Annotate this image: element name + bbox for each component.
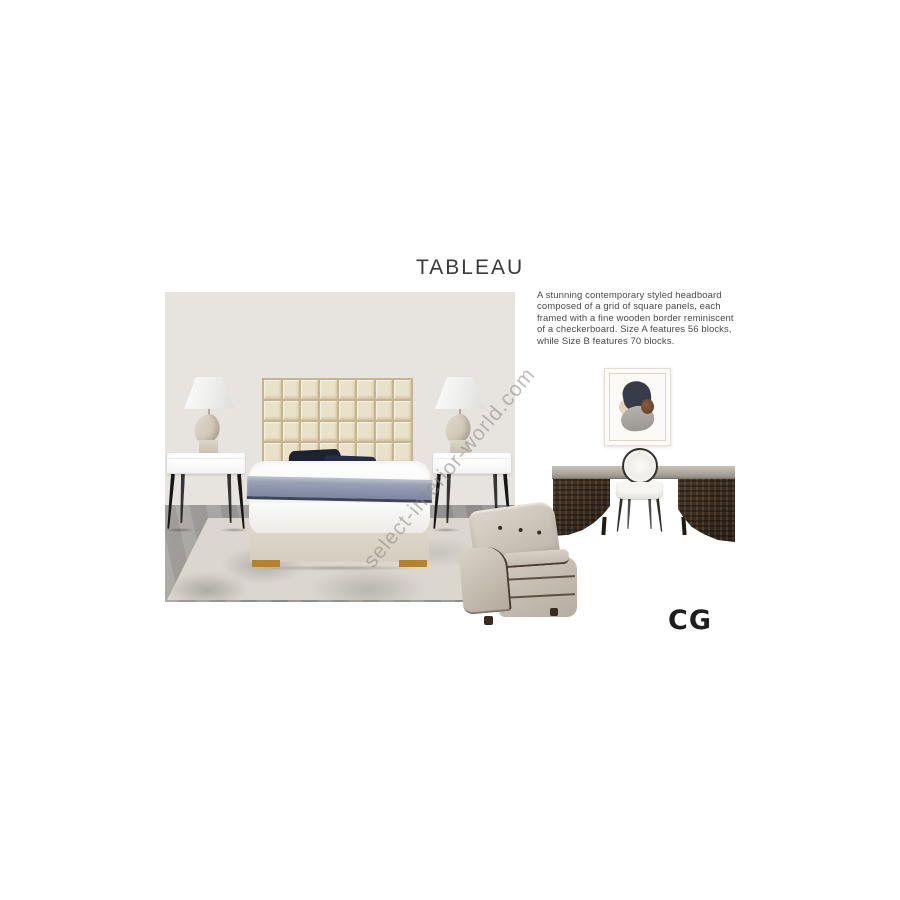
chair-leg <box>626 498 631 529</box>
headboard-panel <box>320 401 337 420</box>
headboard-panel <box>376 422 393 441</box>
brand-logo: CG <box>668 605 712 636</box>
headboard-panel <box>357 422 374 441</box>
headboard-panel <box>376 380 393 399</box>
headboard-panel <box>394 422 411 441</box>
artwork-frame <box>604 368 671 446</box>
bed-foot-brass <box>252 560 280 567</box>
product-description: A stunning contemporary styled headboard… <box>537 290 737 347</box>
bed-foot-brass <box>399 560 427 567</box>
armchair-foot <box>550 608 558 616</box>
headboard-panel <box>283 422 300 441</box>
throw-blanket <box>247 476 432 503</box>
armchair-piping <box>503 593 575 599</box>
armchair-arm <box>458 545 512 615</box>
headboard-panel <box>339 380 356 399</box>
nightstand-left <box>167 453 245 529</box>
chair-leg <box>648 498 653 529</box>
chair-seat <box>616 482 663 499</box>
nightstand-leg <box>179 474 185 523</box>
page-title: TABLEAU <box>416 256 524 280</box>
headboard-panel <box>357 380 374 399</box>
armchair-button <box>537 530 542 535</box>
armchair-foot <box>484 616 493 625</box>
floor-shadow <box>431 528 461 532</box>
moodboard-page: TABLEAU A stunning contemporary styled h… <box>0 0 900 900</box>
abstract-artwork <box>614 378 661 436</box>
lamp-plinth <box>199 440 218 453</box>
armchair-piping <box>503 575 575 581</box>
floor-shadow <box>219 528 249 532</box>
headboard-panel <box>320 422 337 441</box>
armchair-button <box>518 528 523 533</box>
nightstand-leg <box>237 474 246 529</box>
headboard-panel <box>339 401 356 420</box>
nightstand-leg <box>166 474 175 529</box>
desk-woven-panel-right <box>678 476 735 542</box>
headboard-panel <box>394 380 411 399</box>
headboard-panel <box>264 380 281 399</box>
lamp-shade <box>435 377 485 409</box>
headboard-panel <box>320 380 337 399</box>
nightstand-leg <box>227 474 233 523</box>
nightstand-drawer <box>167 453 245 474</box>
chair-leg <box>656 498 663 532</box>
headboard-panel <box>376 401 393 420</box>
chair-leg <box>616 498 623 532</box>
art-shape-brown <box>641 399 654 414</box>
lamp-shade <box>184 377 234 409</box>
oval-back-chair <box>614 448 666 533</box>
headboard-panel <box>394 401 411 420</box>
table-lamp-left <box>184 377 234 453</box>
headboard-panel <box>357 401 374 420</box>
headboard-panel <box>264 422 281 441</box>
headboard-panel <box>283 401 300 420</box>
headboard-panel <box>264 401 281 420</box>
headboard-panel <box>301 422 318 441</box>
armchair <box>461 505 581 627</box>
headboard-panel <box>301 401 318 420</box>
desk-leg <box>601 517 606 535</box>
headboard-panel <box>301 380 318 399</box>
headboard-panel <box>339 422 356 441</box>
headboard-panel <box>283 380 300 399</box>
floor-shadow <box>165 528 195 532</box>
chair-oval-back <box>622 448 658 484</box>
armchair-button <box>498 526 503 531</box>
